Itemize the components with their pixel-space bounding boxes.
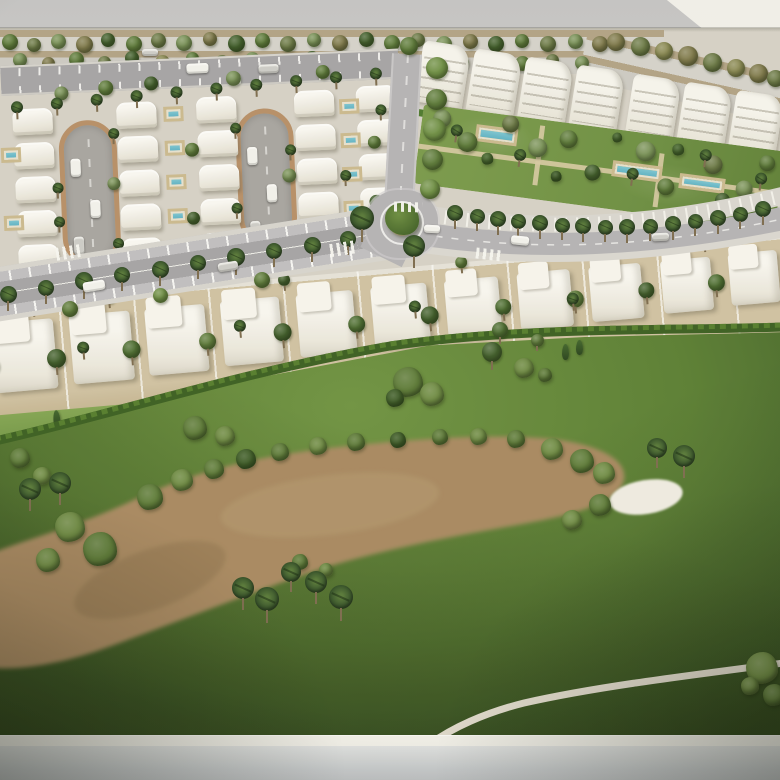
avenue-palm	[190, 255, 206, 271]
avenue-tree	[423, 118, 446, 141]
avenue-palm	[304, 237, 321, 254]
cypress-tree	[576, 340, 583, 355]
avenue-palm	[755, 201, 771, 217]
rough-bush	[309, 437, 327, 455]
avenue-tree	[420, 179, 440, 199]
fairway-palm	[281, 562, 301, 582]
rough-bush	[390, 432, 406, 448]
avenue-palm	[619, 219, 635, 235]
rough-bush	[741, 677, 759, 695]
rough-bush	[538, 368, 552, 382]
avenue-tree	[422, 149, 443, 170]
rough-bush	[470, 428, 487, 445]
crosswalk	[394, 202, 422, 213]
driving-car	[424, 225, 440, 234]
model-table-front	[0, 746, 780, 780]
avenue-palm	[511, 214, 526, 229]
fairway-palm	[19, 478, 41, 500]
fairway-tree	[492, 322, 508, 338]
crosswalk	[475, 247, 502, 261]
rough-bush	[593, 462, 615, 484]
fairway-palm	[255, 587, 279, 611]
avenue-palm	[350, 206, 374, 230]
fairway-tree	[531, 334, 544, 347]
avenue-palm	[555, 218, 570, 233]
driving-car	[511, 235, 530, 246]
crosswalk	[329, 239, 359, 256]
fairway-tree	[482, 342, 502, 362]
avenue-palm	[403, 235, 425, 257]
fairway-palm	[673, 445, 695, 467]
avenue-palm	[152, 261, 169, 278]
avenue-palm	[0, 286, 17, 303]
rough-bush	[271, 443, 289, 461]
architectural-model-photo	[0, 0, 780, 780]
rough-bush	[83, 532, 117, 566]
rough-bush	[236, 449, 256, 469]
avenue-palm	[266, 243, 282, 259]
fairway-palm	[647, 438, 667, 458]
avenue-palm	[532, 215, 548, 231]
avenue-palm	[575, 218, 591, 234]
avenue-tree	[426, 57, 448, 79]
rough-bush	[432, 429, 448, 445]
rough-bush	[10, 448, 30, 468]
avenue-tree	[254, 272, 270, 288]
avenue-palm	[114, 267, 130, 283]
avenue-palm	[643, 219, 658, 234]
rough-bush	[137, 484, 163, 510]
avenue-tree	[62, 301, 78, 317]
avenue-palm	[470, 209, 485, 224]
rough-bush	[541, 438, 563, 460]
crosswalk	[55, 244, 81, 261]
avenue-palm	[688, 214, 703, 229]
rough-bush	[215, 426, 235, 446]
rough-bush	[763, 684, 780, 706]
avenue-palm	[598, 220, 613, 235]
avenue-tree	[426, 89, 447, 110]
scene-props-layer	[0, 0, 780, 780]
rough-bush	[589, 494, 611, 516]
rough-bush	[420, 382, 444, 406]
rough-bush	[204, 459, 224, 479]
avenue-tree	[400, 37, 418, 55]
rough-bush	[507, 430, 525, 448]
driving-car	[651, 233, 668, 242]
fairway-palm	[49, 472, 71, 494]
driving-car	[82, 279, 105, 292]
rough-bush	[386, 389, 404, 407]
avenue-palm	[665, 216, 681, 232]
cypress-tree	[562, 344, 569, 360]
avenue-palm	[38, 280, 54, 296]
avenue-palm	[447, 205, 463, 221]
rough-bush	[347, 433, 365, 451]
fairway-palm	[232, 577, 254, 599]
fairway-palm	[305, 571, 327, 593]
fairway-palm	[329, 585, 353, 609]
rough-bush	[171, 469, 193, 491]
avenue-tree	[153, 288, 168, 303]
rough-bush	[183, 416, 207, 440]
rough-bush	[55, 512, 85, 542]
avenue-palm	[710, 210, 726, 226]
rough-bush	[514, 358, 534, 378]
avenue-palm	[490, 211, 506, 227]
rough-bush	[570, 449, 594, 473]
rough-bush	[562, 510, 582, 530]
rough-bush	[36, 548, 60, 572]
avenue-palm	[733, 207, 748, 222]
